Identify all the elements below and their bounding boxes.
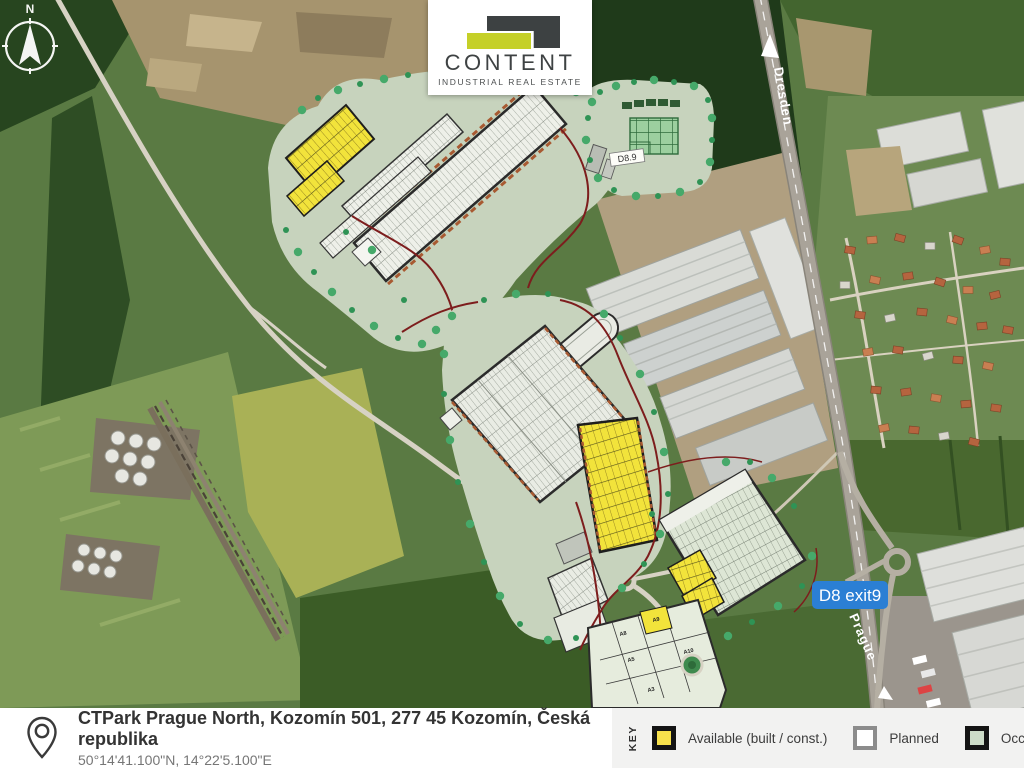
park-address: CTPark Prague North, Kozomín 501, 277 45… [78,708,612,749]
map-key: KEY Available (built / const.) Planned O… [612,708,1024,768]
exit-badge-label: D8 exit9 [819,586,881,605]
legend-item-planned: Planned [853,726,939,750]
map-screenshot: D8.9 [0,0,1024,768]
occupied-swatch [965,726,989,750]
legend-label: Available (built / const.) [688,731,827,746]
key-label: KEY [627,725,639,751]
logo-mark-lime-icon [467,33,531,49]
legend-item-available: Available (built / const.) [652,726,827,750]
exit-badge: D8 exit9 [812,581,888,609]
location-pin-icon [26,716,58,760]
legend-label: Planned [889,731,939,746]
available-swatch [652,726,676,750]
logo-tagline: INDUSTRIAL REAL ESTATE [428,77,592,87]
planned-swatch [853,726,877,750]
address-block: CTPark Prague North, Kozomín 501, 277 45… [0,708,612,768]
park-coordinates: 50°14'41.100"N, 14°22'5.100"E [78,752,612,768]
site-plan-topcenter: D8.9 [582,76,716,200]
legend-label: Occupied ( [1001,731,1024,746]
content-logo-card: CONTENT INDUSTRIAL REAL ESTATE [428,0,592,95]
compass-north-label: N [26,2,35,16]
logo-brand: CONTENT [428,50,592,76]
satellite-map: D8.9 [0,0,1024,708]
info-footer: CTPark Prague North, Kozomín 501, 277 45… [0,708,1024,768]
legend-item-occupied: Occupied ( [965,726,1024,750]
